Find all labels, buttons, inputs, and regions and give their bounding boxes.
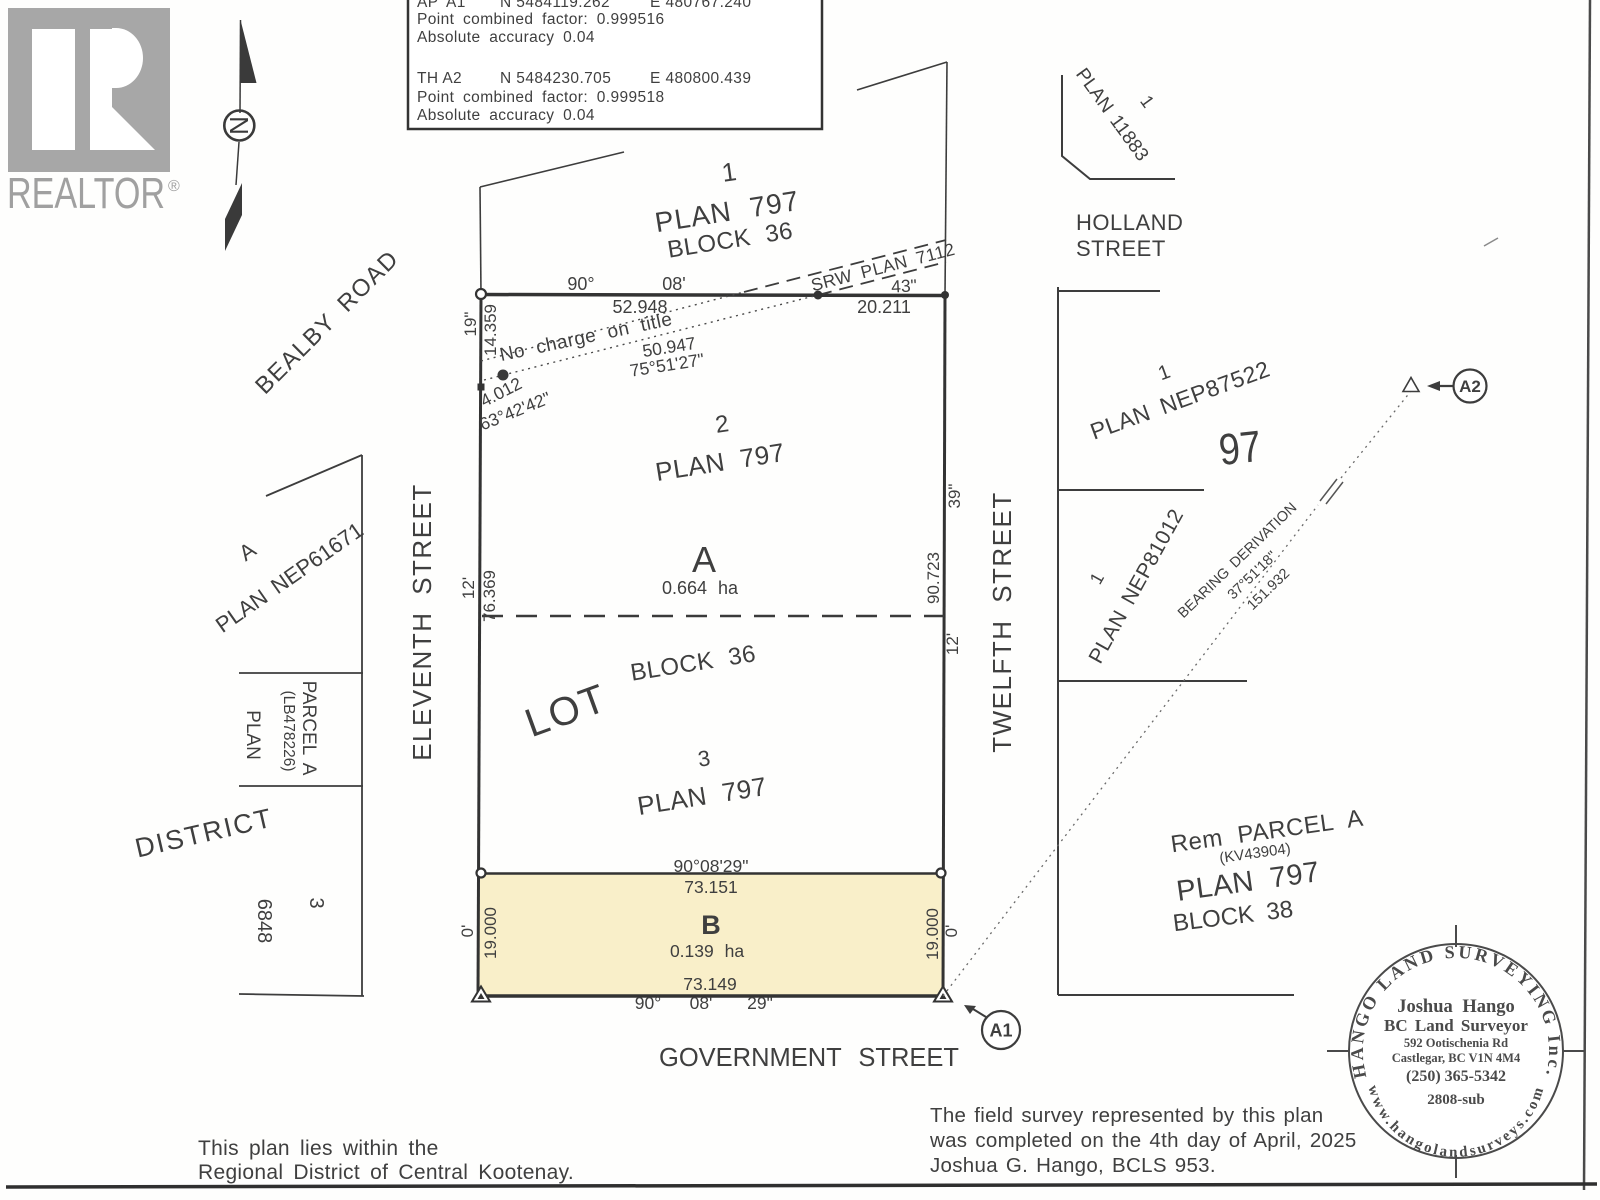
svg-text:A1: A1	[989, 1021, 1012, 1041]
svg-text:75°51'27": 75°51'27"	[628, 349, 705, 380]
svg-text:®: ®	[168, 178, 180, 195]
svg-text:19": 19"	[461, 312, 480, 337]
svg-text:This plan lies within the: This plan lies within the	[198, 1137, 439, 1160]
svg-text:E 480800.439: E 480800.439	[650, 70, 751, 87]
svg-text:2808-sub: 2808-sub	[1427, 1092, 1485, 1108]
svg-text:97: 97	[1217, 422, 1264, 475]
svg-text:PLAN 797: PLAN 797	[653, 437, 787, 487]
svg-text:1: 1	[1086, 569, 1108, 587]
svg-text:B: B	[701, 910, 721, 940]
svg-text:0.139 ha: 0.139 ha	[670, 941, 744, 961]
svg-text:43": 43"	[891, 275, 918, 296]
svg-text:SRW PLAN 7112: SRW PLAN 7112	[809, 239, 957, 295]
svg-text:BEARING DERIVATION: BEARING DERIVATION	[1175, 500, 1300, 622]
svg-text:Joshua G. Hango, BCLS 953.: Joshua G. Hango, BCLS 953.	[930, 1154, 1216, 1177]
svg-text:DISTRICT: DISTRICT	[132, 803, 276, 864]
svg-text:12': 12'	[943, 633, 962, 655]
svg-text:Regional District of Central K: Regional District of Central Kootenay.	[198, 1161, 574, 1184]
svg-text:1: 1	[1155, 361, 1173, 385]
svg-text:1: 1	[1136, 92, 1158, 112]
svg-text:19.000: 19.000	[481, 907, 500, 959]
svg-text:14.359: 14.359	[481, 304, 500, 356]
svg-text:PLAN: PLAN	[242, 710, 263, 760]
svg-text:90°: 90°	[635, 993, 661, 1013]
svg-text:GOVERNMENT STREET: GOVERNMENT STREET	[659, 1044, 959, 1072]
svg-text:0': 0'	[458, 925, 477, 938]
svg-text:90°08'29": 90°08'29"	[674, 856, 749, 876]
svg-text:AP A1: AP A1	[417, 0, 466, 11]
svg-text:90.723: 90.723	[924, 552, 943, 604]
svg-text:Absolute accuracy 0.04: Absolute accuracy 0.04	[417, 107, 595, 124]
svg-text:BEALBY ROAD: BEALBY ROAD	[250, 245, 404, 399]
svg-text:20.211: 20.211	[857, 297, 911, 317]
svg-text:N 5484119.262: N 5484119.262	[500, 0, 610, 11]
svg-text:29": 29"	[747, 993, 773, 1013]
svg-text:BC Land Surveyor: BC Land Surveyor	[1384, 1016, 1528, 1035]
svg-text:Absolute accuracy 0.04: Absolute accuracy 0.04	[417, 29, 595, 46]
svg-text:08': 08'	[662, 274, 685, 294]
svg-text:90°: 90°	[567, 274, 594, 294]
svg-text:73.149: 73.149	[683, 974, 737, 994]
svg-text:1: 1	[720, 156, 739, 188]
svg-text:0': 0'	[942, 925, 961, 938]
svg-text:BLOCK 36: BLOCK 36	[629, 640, 758, 686]
svg-text:ELEVENTH STREET: ELEVENTH STREET	[407, 483, 437, 761]
svg-text:PARCEL A: PARCEL A	[298, 681, 319, 776]
svg-text:LOT: LOT	[519, 676, 613, 746]
svg-text:(LB478226): (LB478226)	[280, 690, 297, 771]
svg-text:STREET: STREET	[1076, 236, 1166, 261]
svg-text:12': 12'	[459, 577, 478, 599]
svg-text:08': 08'	[690, 993, 713, 1013]
svg-text:PLAN 797: PLAN 797	[635, 771, 769, 821]
svg-text:A2: A2	[1459, 377, 1481, 396]
svg-text:6848: 6848	[253, 899, 275, 944]
svg-text:Castlegar, BC V1N 4M4: Castlegar, BC V1N 4M4	[1392, 1051, 1521, 1065]
svg-text:19.000: 19.000	[923, 908, 942, 960]
svg-text:592 Ootischenia Rd: 592 Ootischenia Rd	[1404, 1036, 1508, 1050]
svg-text:3: 3	[696, 745, 712, 771]
svg-text:TH A2: TH A2	[417, 70, 462, 87]
svg-text:76.369: 76.369	[480, 570, 499, 622]
svg-text:N: N	[224, 116, 254, 135]
svg-text:Point combined factor: 0.99951: Point combined factor: 0.999518	[417, 89, 665, 106]
svg-text:3: 3	[305, 897, 327, 908]
svg-text:REALTOR: REALTOR	[7, 169, 165, 218]
svg-text:(250) 365-5342: (250) 365-5342	[1406, 1068, 1506, 1085]
svg-text:N 5484230.705: N 5484230.705	[500, 70, 611, 87]
svg-text:2: 2	[714, 410, 731, 439]
svg-text:HOLLAND: HOLLAND	[1076, 210, 1183, 235]
svg-text:A: A	[692, 539, 716, 580]
svg-text:The field survey represented b: The field survey represented by this pla…	[930, 1104, 1324, 1127]
svg-text:was completed on the 4th day o: was completed on the 4th day of April, 2…	[929, 1129, 1357, 1152]
svg-text:73.151: 73.151	[684, 877, 738, 897]
svg-text:A: A	[234, 537, 261, 566]
svg-text:Joshua Hango: Joshua Hango	[1397, 997, 1515, 1017]
svg-text:0.664 ha: 0.664 ha	[662, 578, 739, 598]
svg-text:TWELFTH STREET: TWELFTH STREET	[987, 491, 1017, 753]
svg-text:PLAN NEP61671: PLAN NEP61671	[211, 517, 368, 637]
svg-text:E 480767.240: E 480767.240	[650, 0, 751, 11]
svg-text:39": 39"	[945, 484, 964, 509]
svg-text:Point combined factor: 0.99951: Point combined factor: 0.999516	[417, 11, 665, 28]
svg-text:PLAN 11883: PLAN 11883	[1071, 64, 1152, 165]
